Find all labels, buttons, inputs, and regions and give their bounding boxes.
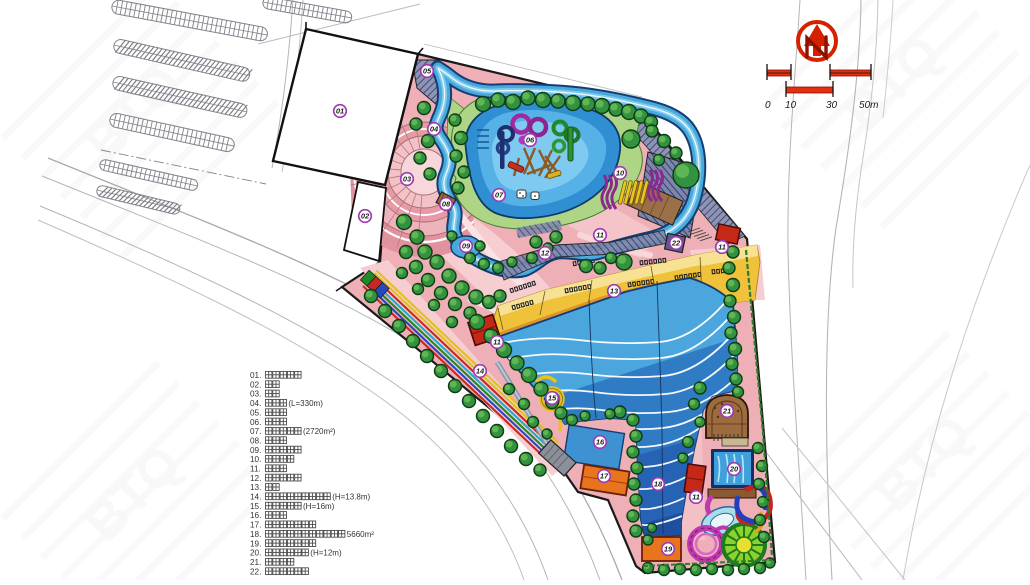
svg-text:05: 05 [423,67,432,76]
svg-text:11: 11 [596,231,604,240]
svg-text:07: 07 [495,191,504,200]
svg-text:11: 11 [718,243,726,252]
svg-text:14.: 14. [250,493,261,502]
svg-text:10: 10 [785,100,797,111]
svg-text:10.: 10. [250,455,261,464]
svg-text:12.: 12. [250,474,261,483]
svg-text:01.: 01. [250,371,261,380]
svg-text:01: 01 [336,107,344,116]
svg-text:10: 10 [616,169,625,178]
svg-text:20.: 20. [250,549,261,558]
svg-text:(L=330m): (L=330m) [288,399,323,408]
svg-text:18.: 18. [250,530,261,539]
svg-text:09.: 09. [250,446,261,455]
svg-text:06: 06 [526,136,535,145]
svg-text:(H=16m): (H=16m) [303,502,335,511]
svg-text:08: 08 [442,200,451,209]
svg-text:5660m²: 5660m² [347,530,374,539]
svg-text:20: 20 [729,465,739,474]
svg-text:30: 30 [826,100,838,111]
svg-text:17.: 17. [250,521,261,530]
svg-text:11.: 11. [250,465,261,474]
svg-text:11: 11 [692,493,700,502]
svg-text:03.: 03. [250,390,261,399]
svg-text:11: 11 [493,338,501,347]
svg-text:02: 02 [361,212,370,221]
svg-text:07.: 07. [250,427,261,436]
svg-text:06.: 06. [250,418,261,427]
svg-text:0: 0 [765,100,771,111]
svg-text:17: 17 [600,472,609,481]
svg-text:(2720m²): (2720m²) [303,427,336,436]
svg-text:02.: 02. [250,380,261,389]
svg-text:22.: 22. [250,567,261,576]
svg-text:16.: 16. [250,511,261,520]
svg-text:(H=12m): (H=12m) [310,549,342,558]
svg-text:21.: 21. [250,558,261,567]
svg-text:13: 13 [610,287,619,296]
svg-text:09: 09 [462,242,471,251]
svg-text:18: 18 [654,480,663,489]
svg-text:19: 19 [664,545,673,554]
svg-text:21: 21 [722,407,731,416]
svg-text:15.: 15. [250,502,261,511]
svg-text:04.: 04. [250,399,261,408]
svg-text:19.: 19. [250,539,261,548]
svg-text:08.: 08. [250,436,261,445]
svg-text:04: 04 [430,125,439,134]
svg-text:05.: 05. [250,408,261,417]
svg-text:13.: 13. [250,483,261,492]
svg-text:15: 15 [548,394,557,403]
svg-text:(H=13.8m): (H=13.8m) [332,493,370,502]
svg-text:22: 22 [671,239,681,248]
svg-text:12: 12 [541,249,550,258]
svg-text:03: 03 [403,175,412,184]
svg-text:16: 16 [596,438,605,447]
svg-text:50m: 50m [859,100,878,111]
svg-text:14: 14 [476,367,485,376]
